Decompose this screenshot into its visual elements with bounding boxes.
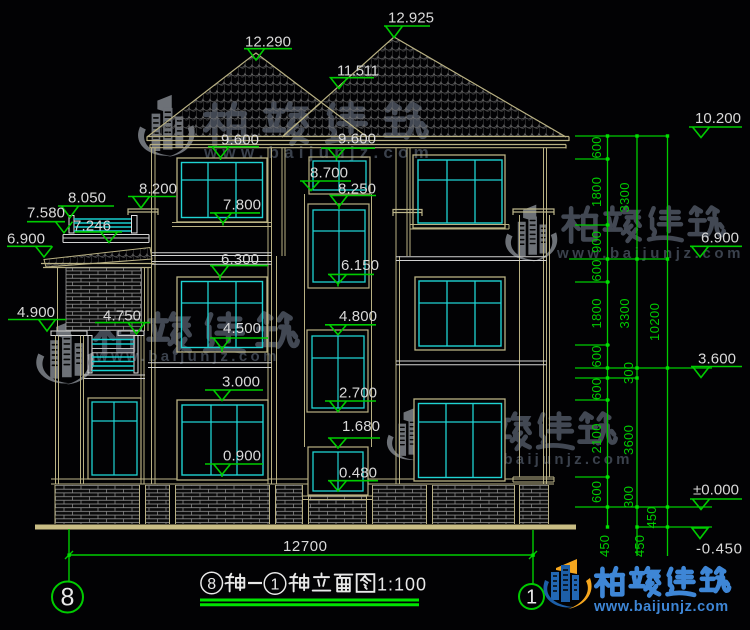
svg-text:6.150: 6.150 [341,257,379,274]
svg-text:2.700: 2.700 [339,385,377,402]
svg-text:450: 450 [644,507,659,529]
svg-text:3300: 3300 [617,299,632,329]
svg-text:10.200: 10.200 [695,110,741,127]
svg-text:600: 600 [589,378,604,400]
svg-text:8.700: 8.700 [310,165,348,182]
svg-text:4.800: 4.800 [339,308,377,325]
svg-text:1:100: 1:100 [377,575,427,595]
svg-text:2100: 2100 [589,424,604,454]
svg-text:300: 300 [621,362,636,384]
svg-text:900: 900 [589,231,604,253]
svg-text:600: 600 [589,260,604,282]
svg-text:600: 600 [589,481,604,503]
svg-text:1: 1 [271,577,280,594]
svg-text:12.290: 12.290 [245,34,291,51]
svg-text:12.925: 12.925 [388,10,434,27]
svg-text:10200: 10200 [647,303,662,341]
svg-text:3.600: 3.600 [698,351,736,368]
svg-text:8: 8 [61,584,75,612]
svg-text:7.800: 7.800 [223,197,261,214]
svg-text:www.baijunjz.com: www.baijunjz.com [593,599,729,615]
svg-text:1.680: 1.680 [342,418,380,435]
svg-text:9.600: 9.600 [221,132,259,149]
svg-text:0.480: 0.480 [339,465,377,482]
svg-text:8: 8 [207,576,216,593]
svg-text:9.600: 9.600 [338,131,376,148]
svg-text:6.300: 6.300 [221,251,259,268]
svg-text:3.000: 3.000 [222,374,260,391]
svg-text:4.750: 4.750 [103,308,141,325]
svg-text:1800: 1800 [589,177,604,207]
svg-text:6.900: 6.900 [7,231,45,248]
svg-text:12700: 12700 [283,538,327,555]
svg-text:600: 600 [589,346,604,368]
svg-text:7.246: 7.246 [73,218,111,235]
svg-text:8.250: 8.250 [338,181,376,198]
svg-text:600: 600 [589,137,604,159]
svg-text:8.050: 8.050 [68,190,106,207]
svg-text:1800: 1800 [589,299,604,329]
svg-text:3600: 3600 [621,425,636,455]
svg-text:3300: 3300 [617,183,632,213]
svg-text:450: 450 [632,535,647,557]
svg-text:0.900: 0.900 [223,448,261,465]
svg-text:300: 300 [621,486,636,508]
svg-text:11.511: 11.511 [337,63,379,80]
svg-text:8.200: 8.200 [139,181,177,198]
svg-text:6.900: 6.900 [701,230,739,247]
svg-text:±0.000: ±0.000 [693,482,739,499]
svg-text:1: 1 [526,587,537,609]
svg-text:450: 450 [597,535,612,557]
svg-text:7.580: 7.580 [27,205,65,222]
svg-text:4.500: 4.500 [223,320,261,337]
svg-text:4.900: 4.900 [17,304,55,321]
svg-text:-0.450: -0.450 [696,541,742,558]
